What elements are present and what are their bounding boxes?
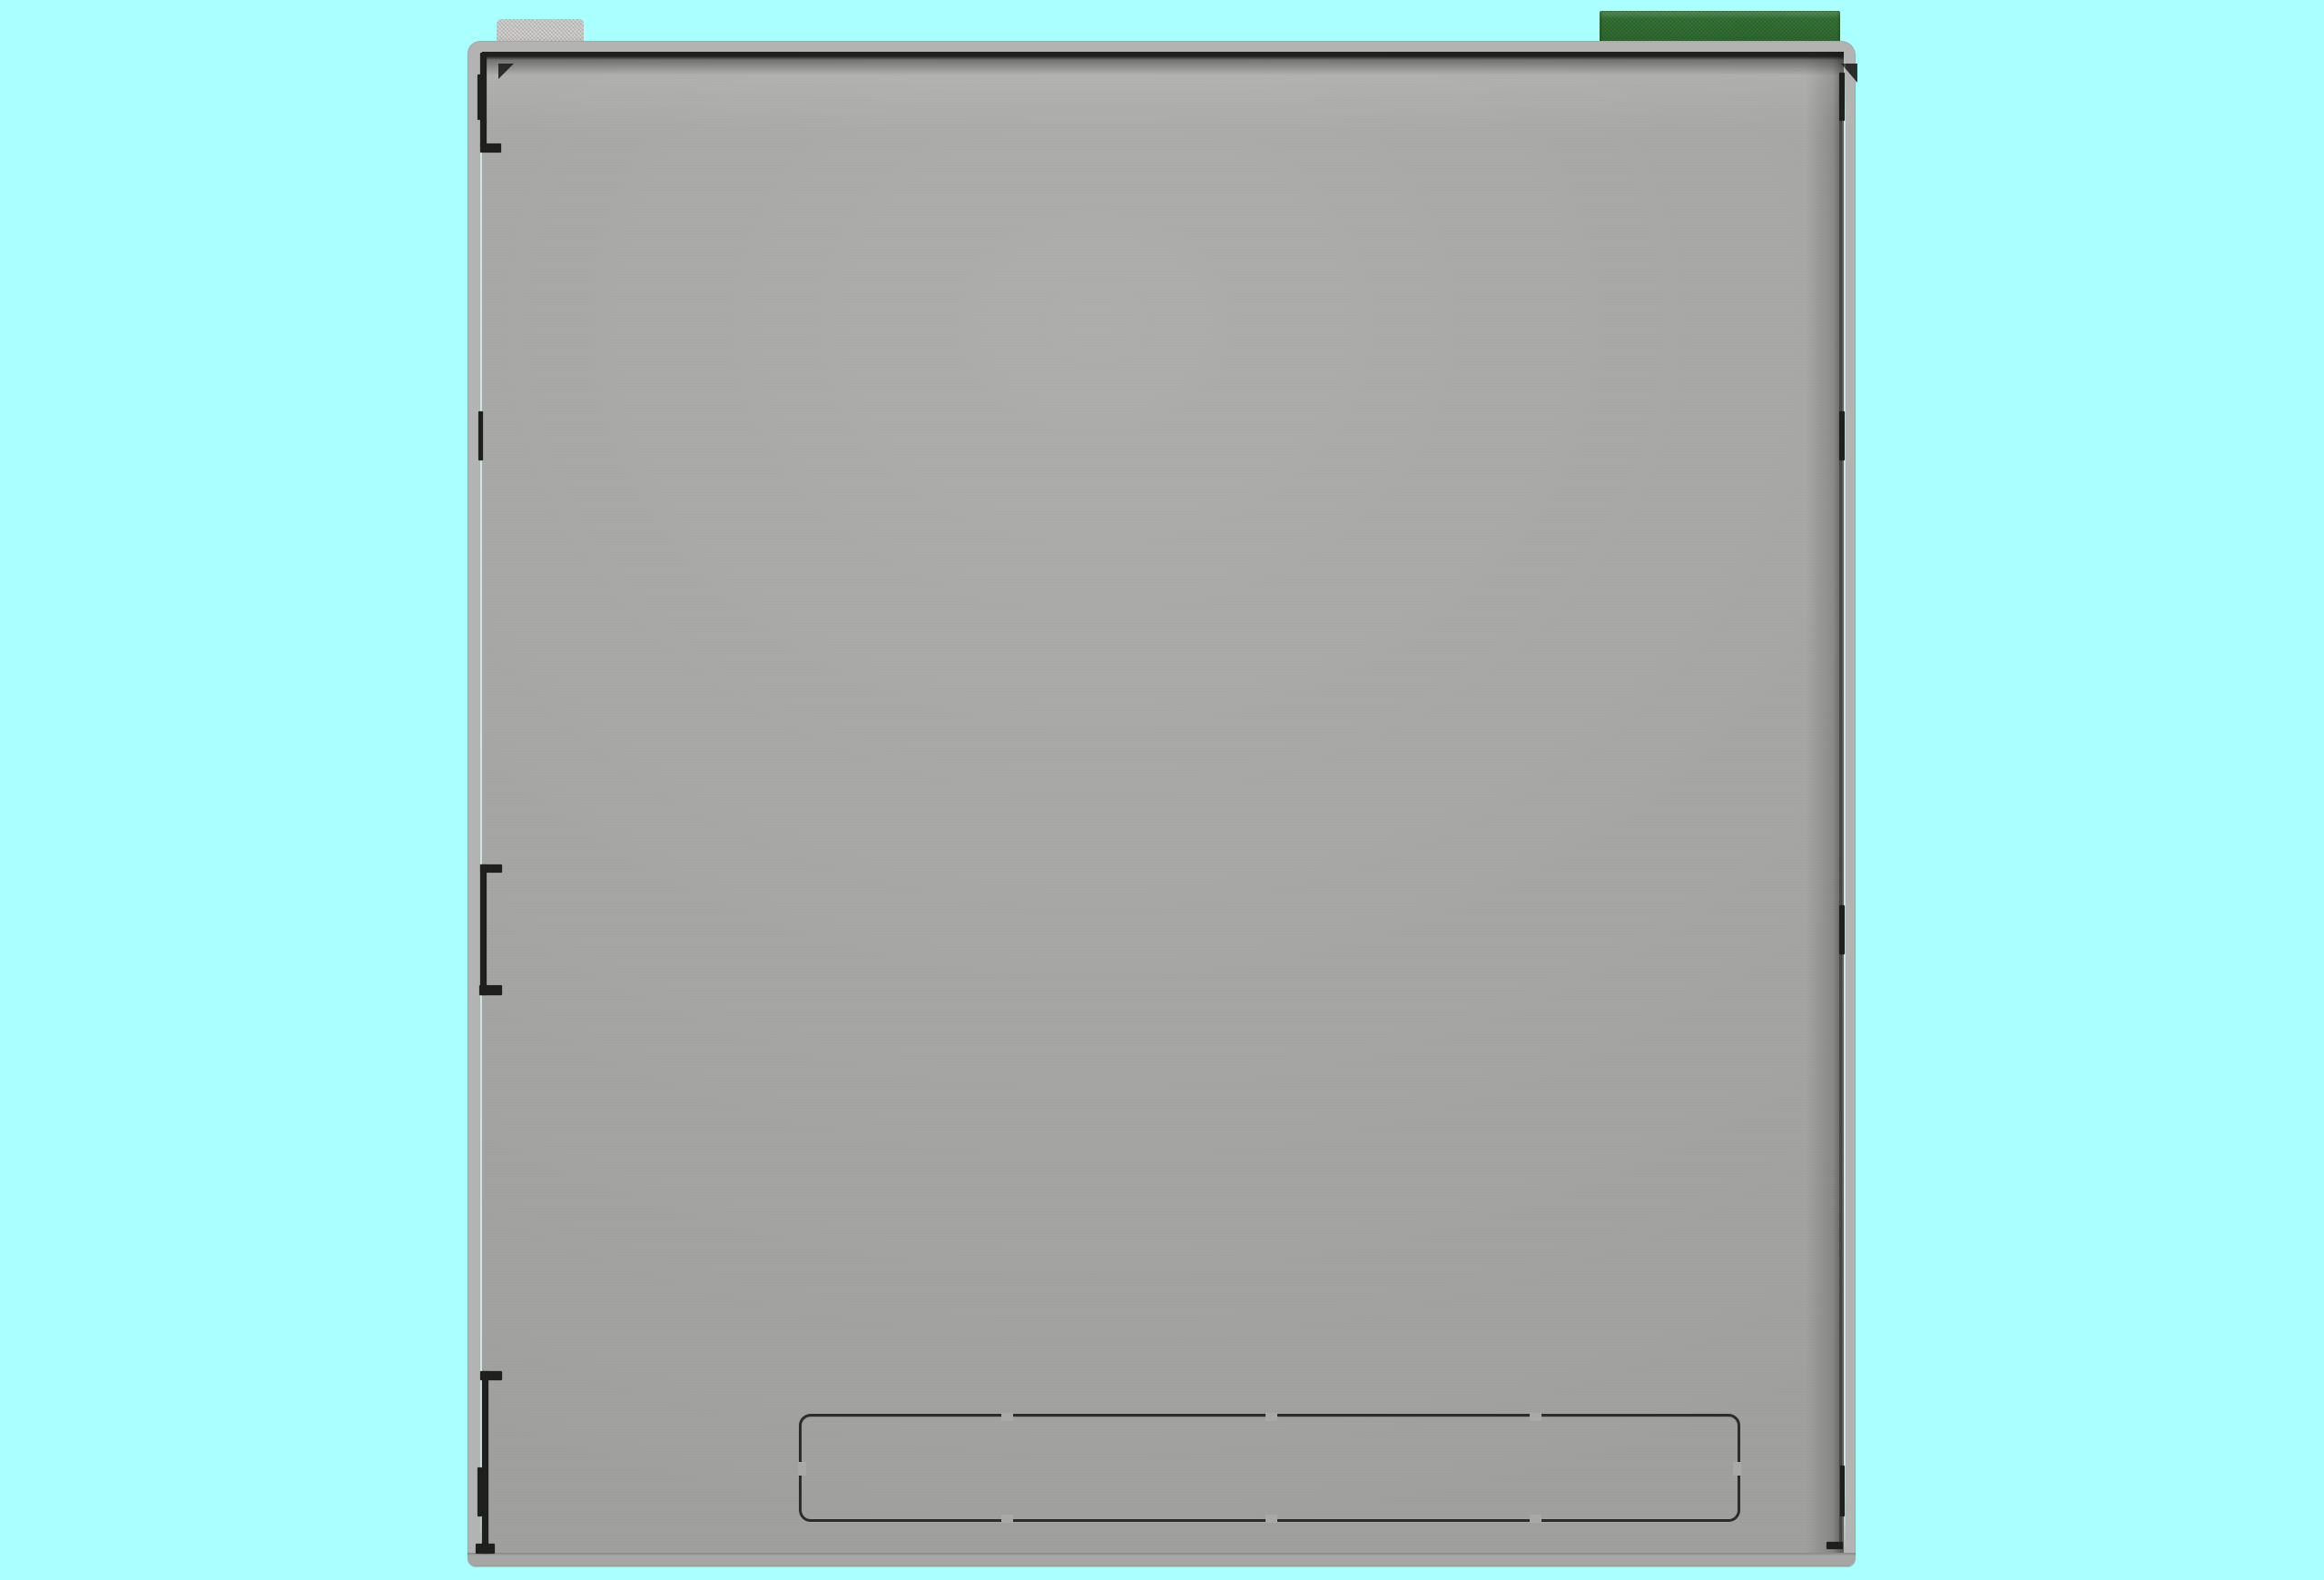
seam-notch-right — [1839, 73, 1845, 121]
recess-bridge-gap — [1001, 1413, 1013, 1421]
seam-notch-left — [479, 985, 502, 995]
enclosure-body — [468, 41, 1856, 1566]
right-seam-highlight — [1844, 54, 1846, 1552]
recess-bridge-gap — [1265, 1413, 1277, 1421]
recess-bridge-gap — [1733, 1462, 1741, 1476]
seam-notch-left — [478, 411, 483, 460]
recess-bridge-gap — [1530, 1413, 1541, 1421]
corner-shadow-top-left — [498, 64, 514, 79]
recess-bridge-gap — [1530, 1515, 1541, 1523]
seam-notch-right — [1839, 118, 1842, 1544]
recess-bridge-gap — [798, 1462, 806, 1476]
side-panel-face — [482, 52, 1844, 1553]
seam-notch-left — [482, 1371, 488, 1554]
recess-bridge-gap — [1265, 1515, 1277, 1523]
seam-notch-left — [478, 1467, 482, 1516]
seam-notch-left — [480, 143, 501, 153]
left-seam-highlight — [480, 64, 482, 1550]
recess-bridge-gap — [1001, 1515, 1013, 1523]
bottom-frame-strip — [468, 1553, 1856, 1566]
seam-notch-left — [478, 74, 482, 120]
render-canvas — [0, 0, 2324, 1580]
seam-notch-left — [476, 1544, 495, 1554]
seam-notch-left — [480, 864, 487, 995]
label-recess-outline — [799, 1414, 1740, 1522]
